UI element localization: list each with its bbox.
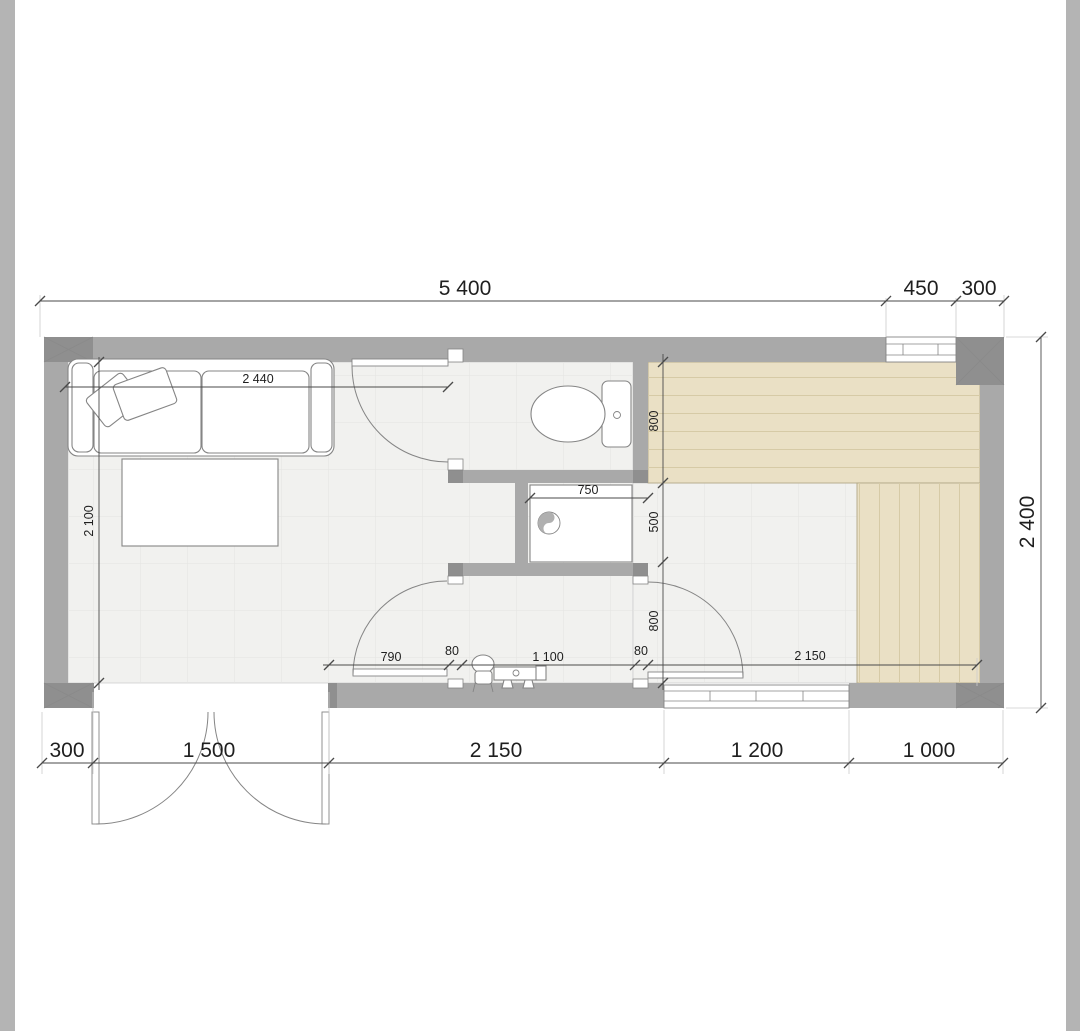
- wall-shower-left: [515, 483, 528, 563]
- counter: [494, 667, 537, 680]
- dim-top-corner: 300: [961, 277, 996, 300]
- wall-top-left-segment: [44, 337, 886, 362]
- dim-terrace-width: 2 150: [794, 649, 825, 663]
- dim-bottom-entry: 1 500: [183, 739, 236, 762]
- dim-seg-1100: 1 100: [532, 650, 563, 664]
- floor-plan-page: 5 400 450 300 2 400 300 1 500 2 150 1 20…: [0, 0, 1080, 1031]
- window-bottom: [664, 685, 849, 708]
- wall-left: [44, 337, 68, 708]
- dim-shower-width: 750: [578, 483, 599, 497]
- floor-plan-drawing: 5 400 450 300 2 400 300 1 500 2 150 1 20…: [0, 0, 1080, 1031]
- washbasin-pedestal: [475, 671, 492, 684]
- sofa-armrest-right: [311, 363, 332, 452]
- dim-seg-80-right: 80: [634, 644, 648, 658]
- wall-below-wc: [448, 470, 648, 483]
- wall-bottom-mid: [329, 683, 664, 708]
- counter-end: [536, 666, 546, 680]
- sofa-armrest-left: [72, 363, 93, 452]
- dim-bottom-deck: 1 000: [903, 739, 956, 762]
- toilet-tank: [602, 381, 631, 447]
- dim-left-depth: 2 100: [82, 505, 96, 536]
- dim-top-overall: 5 400: [439, 277, 492, 300]
- dim-seg-80-left: 80: [445, 644, 459, 658]
- dim-bottom-corner: 300: [49, 739, 84, 762]
- window-top: [886, 337, 956, 362]
- right-edge-strip: [1066, 0, 1080, 1031]
- washbasin: [472, 655, 494, 673]
- door-entry-double: [92, 712, 329, 824]
- dim-sofa-width: 2 440: [242, 372, 273, 386]
- dim-right-overall: 2 400: [1016, 496, 1039, 549]
- dim-wc-depth: 800: [647, 411, 661, 432]
- foot-right: [523, 680, 534, 688]
- foot-left: [502, 680, 513, 688]
- sofa: [68, 359, 334, 456]
- dim-shower-depth: 500: [647, 512, 661, 533]
- left-edge-strip: [0, 0, 15, 1031]
- toilet-bowl: [531, 386, 605, 442]
- wall-wc-deck: [633, 362, 648, 483]
- dim-bottom-window: 1 200: [731, 739, 784, 762]
- dim-hall-depth: 800: [647, 611, 661, 632]
- toilet: [531, 381, 631, 447]
- wall-right: [980, 337, 1004, 708]
- table: [122, 459, 278, 546]
- dim-top-window: 450: [903, 277, 938, 300]
- dim-bottom-mid: 2 150: [470, 739, 523, 762]
- dim-seg-790: 790: [381, 650, 402, 664]
- wall-below-shower: [448, 563, 648, 576]
